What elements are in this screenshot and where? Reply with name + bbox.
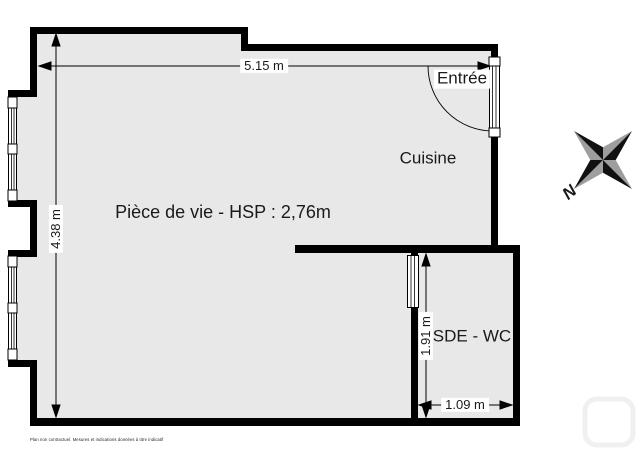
dimension-label-bathroom-height: 1.91 m xyxy=(419,312,433,360)
dimension-label-top-width: 5.15 m xyxy=(240,59,288,73)
room-label-kitchen: Cuisine xyxy=(400,150,457,169)
watermark xyxy=(585,399,633,445)
window-1 xyxy=(8,97,17,201)
dimension-label-left-height: 4.38 m xyxy=(49,205,63,253)
bathroom-door xyxy=(408,256,419,308)
disclaimer-text: Plan non contractuel. Mesures et indicat… xyxy=(30,437,163,442)
north-arrow-icon xyxy=(545,102,640,218)
room-label-bathroom: SDE - WC xyxy=(433,328,511,347)
window-2 xyxy=(8,256,17,360)
room-label-entrance: Entrée xyxy=(434,70,490,89)
floor-plan: Pièce de vie - HSP : 2,76m Cuisine SDE -… xyxy=(0,0,640,453)
room-label-living: Pièce de vie - HSP : 2,76m xyxy=(115,203,331,223)
dimension-label-bathroom-width: 1.09 m xyxy=(441,398,489,412)
floor-plan-drawing xyxy=(0,0,640,453)
floor-area xyxy=(16,30,516,422)
